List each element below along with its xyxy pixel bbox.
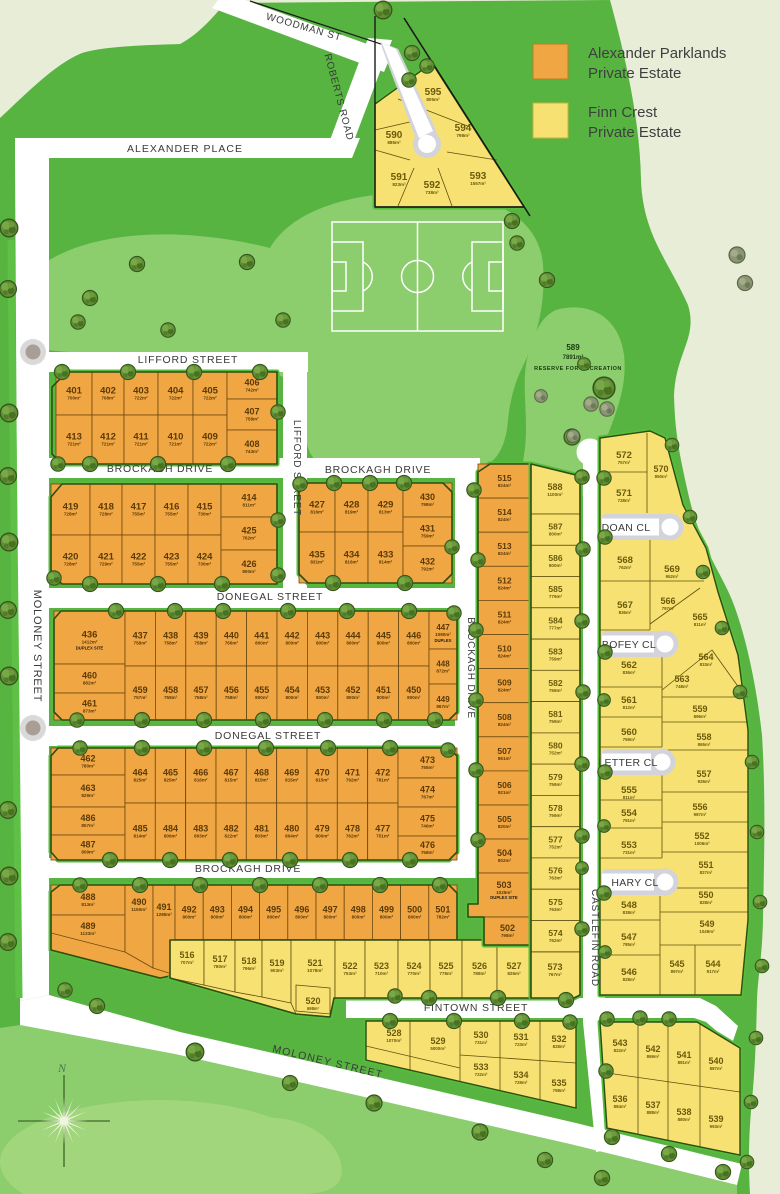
svg-text:815m²: 815m² [255, 778, 269, 783]
svg-text:759m²: 759m² [549, 719, 563, 724]
svg-text:829m²: 829m² [81, 793, 95, 798]
svg-text:815m²: 815m² [285, 778, 299, 783]
svg-text:800m²: 800m² [407, 641, 421, 646]
svg-text:1049m²: 1049m² [699, 929, 715, 934]
svg-text:517: 517 [212, 954, 227, 964]
svg-text:800m²: 800m² [295, 915, 309, 920]
svg-text:506: 506 [497, 780, 511, 790]
svg-text:758m²: 758m² [225, 695, 239, 700]
svg-text:921m²: 921m² [498, 790, 512, 795]
svg-text:475: 475 [420, 814, 435, 824]
svg-text:534: 534 [513, 1070, 528, 1080]
svg-text:1100m²: 1100m² [547, 492, 563, 497]
svg-text:574: 574 [548, 928, 562, 938]
svg-text:759m²: 759m² [623, 737, 636, 742]
svg-text:721m²: 721m² [134, 442, 148, 447]
svg-text:780m²: 780m² [213, 964, 227, 969]
svg-text:825m²: 825m² [134, 778, 148, 783]
svg-text:N: N [57, 1061, 67, 1075]
svg-text:470: 470 [315, 768, 330, 778]
svg-text:414: 414 [241, 493, 256, 503]
svg-text:528: 528 [386, 1028, 401, 1038]
svg-text:505: 505 [497, 814, 511, 824]
svg-text:800m²: 800m² [182, 915, 196, 920]
svg-text:458: 458 [163, 685, 178, 695]
svg-text:575: 575 [548, 897, 562, 907]
svg-text:559: 559 [692, 704, 707, 714]
svg-text:425: 425 [241, 526, 256, 536]
svg-text:453: 453 [315, 685, 330, 695]
svg-text:407: 407 [244, 407, 259, 417]
svg-text:540: 540 [708, 1056, 723, 1066]
svg-text:455: 455 [254, 685, 269, 695]
svg-text:492: 492 [182, 905, 197, 915]
svg-text:545: 545 [669, 959, 684, 969]
svg-text:452: 452 [345, 685, 360, 695]
svg-text:518: 518 [241, 956, 256, 966]
svg-text:710m²: 710m² [375, 971, 389, 976]
svg-text:806m²: 806m² [164, 834, 178, 839]
svg-text:800m²: 800m² [316, 834, 330, 839]
svg-text:472: 472 [375, 768, 390, 778]
svg-text:448: 448 [436, 660, 450, 669]
svg-text:800m²: 800m² [407, 695, 421, 700]
svg-text:800m²: 800m² [267, 915, 281, 920]
svg-text:564: 564 [698, 652, 713, 662]
svg-text:1133m²: 1133m² [80, 931, 96, 936]
svg-text:800m²: 800m² [211, 915, 225, 920]
svg-text:481: 481 [254, 824, 269, 834]
svg-text:509: 509 [497, 678, 511, 688]
svg-text:1285m²: 1285m² [156, 912, 172, 917]
svg-text:468: 468 [254, 768, 269, 778]
svg-text:488: 488 [80, 892, 95, 902]
svg-text:LIFFORD STREET: LIFFORD STREET [291, 420, 302, 516]
svg-text:440: 440 [224, 631, 239, 641]
svg-text:752m²: 752m² [549, 751, 563, 756]
svg-text:698m²: 698m² [307, 1006, 320, 1011]
svg-text:800m²: 800m² [316, 641, 330, 646]
svg-text:549: 549 [699, 919, 714, 929]
svg-text:788m²: 788m² [473, 971, 487, 976]
svg-text:816m²: 816m² [345, 560, 359, 565]
svg-text:753m²: 753m² [343, 971, 357, 976]
svg-text:583: 583 [548, 647, 562, 657]
svg-text:798m²: 798m² [501, 933, 515, 938]
svg-text:827m²: 827m² [700, 870, 713, 875]
svg-text:816m²: 816m² [310, 510, 324, 515]
svg-text:800m²: 800m² [377, 695, 391, 700]
svg-text:767m²: 767m² [548, 972, 562, 977]
svg-text:447: 447 [436, 623, 450, 632]
svg-text:482: 482 [224, 824, 239, 834]
svg-text:802m²: 802m² [498, 858, 512, 863]
svg-text:463: 463 [80, 783, 95, 793]
svg-text:466: 466 [193, 768, 208, 778]
svg-text:510: 510 [497, 644, 511, 654]
svg-text:926m²: 926m² [698, 779, 711, 784]
svg-text:865m²: 865m² [698, 742, 711, 747]
svg-text:584: 584 [548, 615, 562, 625]
svg-text:FINTOWN STREET: FINTOWN STREET [424, 1002, 528, 1014]
svg-text:501: 501 [435, 905, 450, 915]
svg-text:721m²: 721m² [169, 442, 183, 447]
svg-text:782m²: 782m² [436, 915, 450, 920]
svg-text:503: 503 [496, 880, 511, 890]
svg-text:DUPLEX SITE: DUPLEX SITE [490, 895, 518, 900]
svg-text:824m²: 824m² [498, 517, 512, 522]
svg-text:797m²: 797m² [662, 606, 675, 611]
svg-text:896m²: 896m² [694, 714, 707, 719]
svg-text:811m²: 811m² [242, 503, 255, 508]
svg-text:700m²: 700m² [67, 396, 81, 401]
svg-text:763m²: 763m² [549, 907, 563, 912]
svg-text:430: 430 [420, 492, 435, 502]
svg-text:758m²: 758m² [421, 850, 435, 855]
svg-text:800m²: 800m² [408, 915, 422, 920]
svg-text:464: 464 [133, 768, 148, 778]
svg-text:708m²: 708m² [101, 396, 115, 401]
svg-text:805m²: 805m² [426, 97, 440, 102]
svg-text:746m²: 746m² [421, 824, 435, 829]
svg-text:813m²: 813m² [379, 510, 393, 515]
svg-text:857m²: 857m² [81, 823, 95, 828]
svg-text:779m²: 779m² [549, 594, 563, 599]
svg-text:1078m²: 1078m² [307, 968, 323, 973]
svg-text:585: 585 [548, 584, 562, 594]
svg-text:502: 502 [500, 923, 515, 933]
svg-text:461: 461 [82, 699, 97, 709]
svg-text:833m²: 833m² [700, 662, 713, 667]
svg-text:437: 437 [133, 631, 148, 641]
svg-text:524: 524 [406, 961, 421, 971]
svg-text:476: 476 [420, 840, 435, 850]
svg-text:515: 515 [497, 473, 511, 483]
svg-text:800m²: 800m² [323, 915, 337, 920]
svg-text:581: 581 [548, 709, 562, 719]
svg-text:441: 441 [254, 631, 269, 641]
svg-text:486: 486 [80, 813, 95, 823]
svg-text:722m²: 722m² [134, 396, 148, 401]
svg-text:729m²: 729m² [99, 562, 113, 567]
svg-text:442: 442 [285, 631, 300, 641]
svg-text:573: 573 [547, 962, 562, 972]
svg-text:758m²: 758m² [164, 695, 178, 700]
svg-text:759m²: 759m² [549, 813, 563, 818]
svg-text:MOLONEY STREET: MOLONEY STREET [31, 590, 43, 702]
svg-text:826m²: 826m² [507, 971, 521, 976]
svg-text:728m²: 728m² [618, 498, 631, 503]
svg-text:529: 529 [430, 1036, 445, 1046]
svg-text:803m²: 803m² [194, 834, 208, 839]
svg-text:824m²: 824m² [498, 619, 512, 624]
svg-text:728m²: 728m² [99, 512, 113, 517]
svg-text:728m²: 728m² [64, 562, 78, 567]
svg-text:755m²: 755m² [421, 765, 435, 770]
svg-text:815m²: 815m² [316, 778, 330, 783]
svg-text:861m²: 861m² [498, 756, 512, 761]
svg-text:831m²: 831m² [310, 560, 324, 565]
svg-text:800m²: 800m² [286, 695, 300, 700]
svg-text:800m²: 800m² [380, 915, 394, 920]
svg-text:850m²: 850m² [655, 474, 668, 479]
svg-text:537: 537 [645, 1100, 660, 1110]
svg-text:552: 552 [694, 831, 709, 841]
svg-text:824m²: 824m² [498, 551, 512, 556]
svg-text:474: 474 [420, 785, 435, 795]
svg-text:487: 487 [80, 840, 95, 850]
svg-text:DONEGAL STREET: DONEGAL STREET [217, 591, 324, 603]
svg-text:535: 535 [551, 1078, 566, 1088]
svg-text:778m²: 778m² [439, 971, 453, 976]
svg-text:836m²: 836m² [623, 670, 636, 675]
svg-text:Private Estate: Private Estate [588, 65, 681, 82]
svg-text:499: 499 [379, 905, 394, 915]
svg-text:536: 536 [612, 1094, 627, 1104]
svg-text:820m²: 820m² [498, 824, 512, 829]
svg-text:565: 565 [692, 612, 707, 622]
svg-text:748m²: 748m² [676, 684, 689, 689]
svg-text:731m²: 731m² [475, 1040, 488, 1045]
svg-text:742m²: 742m² [245, 388, 259, 393]
svg-text:873m²: 873m² [83, 709, 97, 714]
svg-text:800m²: 800m² [346, 641, 360, 646]
svg-text:531: 531 [513, 1032, 528, 1042]
svg-text:888m²: 888m² [647, 1110, 660, 1115]
svg-text:796m²: 796m² [242, 966, 256, 971]
svg-text:816m²: 816m² [194, 778, 208, 783]
svg-text:887m²: 887m² [710, 1066, 723, 1071]
svg-text:BROCKAGH DRIVE: BROCKAGH DRIVE [325, 464, 431, 476]
svg-text:512: 512 [497, 575, 511, 585]
svg-text:563: 563 [674, 674, 689, 684]
svg-text:828m²: 828m² [700, 900, 713, 905]
svg-text:497: 497 [323, 905, 338, 915]
svg-text:1412m²: 1412m² [82, 640, 98, 645]
svg-text:758m²: 758m² [245, 417, 259, 422]
svg-text:884m²: 884m² [614, 1104, 627, 1109]
svg-text:722m²: 722m² [475, 1072, 488, 1077]
svg-text:803m²: 803m² [255, 834, 269, 839]
svg-text:438: 438 [163, 631, 178, 641]
svg-text:792m²: 792m² [421, 567, 435, 572]
svg-text:588: 588 [547, 482, 562, 492]
svg-text:798m²: 798m² [456, 133, 470, 138]
svg-text:451: 451 [376, 685, 391, 695]
svg-text:496: 496 [294, 905, 309, 915]
svg-text:743m²: 743m² [245, 449, 259, 454]
svg-text:800m²: 800m² [286, 641, 300, 646]
svg-text:800m²: 800m² [352, 915, 366, 920]
svg-text:516: 516 [179, 950, 194, 960]
svg-text:792m²: 792m² [346, 778, 360, 783]
svg-text:504: 504 [497, 848, 512, 858]
svg-text:DUPLEX: DUPLEX [435, 638, 452, 643]
svg-text:824m²: 824m² [498, 654, 512, 659]
svg-text:917m²: 917m² [707, 969, 720, 974]
svg-text:800m²: 800m² [316, 695, 330, 700]
svg-text:1557m²: 1557m² [470, 181, 486, 186]
svg-text:484: 484 [163, 824, 178, 834]
svg-text:758m²: 758m² [164, 641, 178, 646]
svg-text:767m²: 767m² [421, 795, 435, 800]
svg-text:777m²: 777m² [549, 625, 563, 630]
svg-text:557: 557 [696, 769, 711, 779]
svg-text:513: 513 [497, 541, 511, 551]
svg-text:838m²: 838m² [623, 910, 636, 915]
svg-text:493: 493 [210, 905, 225, 915]
svg-text:490: 490 [131, 897, 146, 907]
svg-text:825m²: 825m² [164, 778, 178, 783]
svg-text:431: 431 [420, 524, 435, 534]
svg-text:751m²: 751m² [376, 834, 390, 839]
svg-text:800m²: 800m² [346, 695, 360, 700]
svg-text:522: 522 [342, 961, 357, 971]
svg-text:766m²: 766m² [225, 641, 239, 646]
svg-text:828m²: 828m² [553, 1044, 566, 1049]
svg-text:811m²: 811m² [694, 622, 707, 627]
svg-text:538: 538 [676, 1107, 691, 1117]
svg-text:903m²: 903m² [270, 968, 284, 973]
svg-text:539: 539 [708, 1114, 723, 1124]
svg-text:514: 514 [497, 507, 511, 517]
svg-text:5000m²: 5000m² [430, 1046, 446, 1051]
svg-text:449: 449 [436, 695, 450, 704]
svg-text:480: 480 [284, 824, 299, 834]
svg-text:752m²: 752m² [549, 844, 563, 849]
svg-text:527: 527 [506, 961, 521, 971]
svg-text:728m²: 728m² [64, 512, 78, 517]
svg-text:755m²: 755m² [165, 562, 179, 567]
svg-text:544: 544 [705, 959, 720, 969]
svg-text:526: 526 [472, 961, 487, 971]
svg-text:460: 460 [82, 671, 97, 681]
svg-text:824m²: 824m² [498, 722, 512, 727]
svg-text:798m²: 798m² [421, 502, 435, 507]
svg-text:580: 580 [548, 741, 562, 751]
svg-text:523: 523 [374, 961, 389, 971]
svg-text:882m²: 882m² [83, 681, 97, 686]
svg-text:491: 491 [156, 902, 171, 912]
svg-text:454: 454 [285, 685, 300, 695]
svg-text:867m²: 867m² [436, 704, 450, 709]
svg-text:541: 541 [676, 1050, 691, 1060]
svg-text:550: 550 [698, 890, 713, 900]
svg-text:426: 426 [241, 559, 256, 569]
svg-text:881m²: 881m² [678, 1060, 691, 1065]
svg-text:824m²: 824m² [498, 688, 512, 693]
svg-text:Private Estate: Private Estate [588, 124, 681, 141]
svg-text:485: 485 [133, 824, 148, 834]
svg-text:836m²: 836m² [619, 610, 632, 615]
svg-text:800m²: 800m² [549, 563, 563, 568]
svg-text:952m²: 952m² [666, 574, 679, 579]
svg-text:770m²: 770m² [407, 971, 421, 976]
svg-text:785m²: 785m² [623, 942, 636, 947]
svg-text:722m²: 722m² [169, 396, 183, 401]
svg-text:520: 520 [305, 996, 320, 1006]
svg-text:443: 443 [315, 631, 330, 641]
svg-text:822m²: 822m² [225, 834, 239, 839]
svg-text:465: 465 [163, 768, 178, 778]
svg-text:478: 478 [345, 824, 360, 834]
svg-text:Alexander Parklands: Alexander Parklands [588, 45, 726, 62]
svg-text:758m²: 758m² [134, 641, 148, 646]
svg-text:ALEXANDER PLACE: ALEXANDER PLACE [127, 143, 243, 155]
svg-text:721m²: 721m² [101, 442, 115, 447]
svg-text:483: 483 [193, 824, 208, 834]
svg-text:885m²: 885m² [387, 140, 401, 145]
svg-text:755m²: 755m² [132, 562, 146, 567]
svg-text:824m²: 824m² [498, 585, 512, 590]
svg-text:800m²: 800m² [255, 695, 269, 700]
svg-text:800m²: 800m² [242, 569, 256, 574]
svg-text:570: 570 [653, 464, 668, 474]
svg-text:532: 532 [551, 1034, 566, 1044]
svg-text:489: 489 [80, 921, 95, 931]
svg-text:1070m²: 1070m² [386, 1038, 402, 1043]
svg-text:762m²: 762m² [619, 565, 632, 570]
svg-text:880m²: 880m² [678, 1117, 691, 1122]
svg-text:812m²: 812m² [623, 705, 636, 710]
svg-text:758m²: 758m² [194, 695, 208, 700]
svg-text:800m²: 800m² [549, 532, 563, 537]
svg-text:800m²: 800m² [377, 641, 391, 646]
svg-text:477: 477 [375, 824, 390, 834]
svg-text:459: 459 [133, 685, 148, 695]
svg-text:577: 577 [548, 834, 562, 844]
svg-text:525: 525 [438, 961, 453, 971]
svg-text:450: 450 [406, 685, 421, 695]
svg-text:495: 495 [266, 905, 281, 915]
svg-text:511: 511 [498, 609, 512, 619]
svg-text:738m²: 738m² [425, 190, 439, 195]
svg-text:729m²: 729m² [515, 1080, 528, 1085]
svg-text:LIFFORD STREET: LIFFORD STREET [138, 354, 238, 366]
svg-text:730m²: 730m² [198, 512, 212, 517]
svg-text:814m²: 814m² [379, 560, 393, 565]
svg-text:804m²: 804m² [285, 834, 299, 839]
svg-text:1006m²: 1006m² [694, 841, 710, 846]
svg-text:457: 457 [193, 685, 208, 695]
svg-text:781m²: 781m² [376, 778, 390, 783]
svg-text:500: 500 [407, 905, 422, 915]
svg-text:494: 494 [238, 905, 253, 915]
svg-text:589: 589 [566, 343, 580, 352]
svg-text:498: 498 [351, 905, 366, 915]
svg-text:576: 576 [548, 866, 562, 876]
svg-text:444: 444 [345, 631, 360, 641]
svg-text:530: 530 [473, 1030, 488, 1040]
svg-text:814m²: 814m² [134, 834, 148, 839]
svg-text:507: 507 [497, 746, 511, 756]
svg-text:762m²: 762m² [549, 938, 563, 943]
svg-text:456: 456 [224, 685, 239, 695]
svg-text:800m²: 800m² [239, 915, 253, 920]
svg-text:723m²: 723m² [515, 1042, 528, 1047]
svg-text:446: 446 [406, 631, 421, 641]
svg-text:757m²: 757m² [134, 695, 148, 700]
svg-text:432: 432 [420, 557, 435, 567]
svg-text:469: 469 [284, 768, 299, 778]
svg-text:586: 586 [548, 553, 562, 563]
svg-text:479: 479 [315, 824, 330, 834]
svg-text:780m²: 780m² [81, 764, 95, 769]
svg-text:762m²: 762m² [242, 536, 256, 541]
svg-text:755m²: 755m² [132, 512, 146, 517]
svg-text:471: 471 [345, 768, 360, 778]
svg-text:819m²: 819m² [345, 510, 359, 515]
